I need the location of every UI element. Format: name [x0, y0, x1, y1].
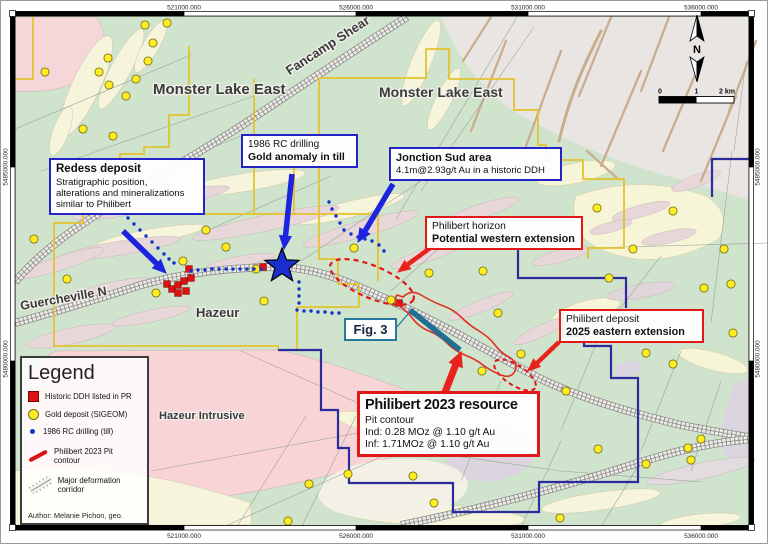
- rc-till-dot-marker: [330, 207, 333, 210]
- coord-top-4: 536000.000: [684, 5, 718, 12]
- coord-top-2: 526000.000: [339, 5, 373, 12]
- gold-deposit-marker: [562, 387, 570, 395]
- rc-till-dot-marker: [167, 257, 170, 260]
- gold-deposit-marker: [669, 360, 677, 368]
- callout-1986-rc-drilling: 1986 RC drilling Gold anomaly in till: [241, 134, 358, 168]
- label-hazeur: Hazeur: [196, 305, 239, 320]
- historic-ddh-marker: [188, 275, 195, 282]
- gold-deposit-marker: [700, 284, 708, 292]
- gold-deposit-marker: [95, 68, 103, 76]
- callout-philibert-2023-resource: Philibert 2023 resource Pit contour Ind:…: [357, 391, 540, 457]
- rc-till-dot-marker: [342, 228, 345, 231]
- gold-deposit-marker: [669, 207, 677, 215]
- gold-deposit-marker: [605, 274, 613, 282]
- gold-deposit-marker: [222, 243, 230, 251]
- callout-title: Philibert 2023 resource: [365, 397, 532, 414]
- callout-redess-deposit: Redess deposit Stratigraphic position, a…: [49, 158, 205, 215]
- coord-left-upper: 5485000.000: [3, 148, 10, 186]
- rc-till-dot-marker: [150, 240, 153, 243]
- historic-ddh-marker: [181, 278, 188, 285]
- coord-top-3: 531000.000: [511, 5, 545, 12]
- callout-title: Redess deposit: [56, 163, 198, 176]
- legend-item-label: 1986 RC drilling (till): [43, 427, 113, 436]
- rc-till-dot-marker: [210, 267, 213, 270]
- rc-till-dot-marker: [377, 243, 380, 246]
- gold-deposit-marker: [202, 226, 210, 234]
- coord-bottom-2: 526000.000: [339, 533, 373, 540]
- rc-till-dot-marker: [337, 311, 340, 314]
- rc-till-dot-marker: [297, 280, 300, 283]
- gold-deposit-marker: [79, 125, 87, 133]
- rc-till-dot-marker: [132, 222, 135, 225]
- historic-ddh-marker: [175, 290, 182, 297]
- callout-line: 2025 eastern extension: [566, 326, 697, 339]
- blue-dot-symbol: [30, 429, 35, 434]
- legend-title: Legend: [28, 362, 141, 385]
- rc-till-dot-marker: [316, 310, 319, 313]
- rc-till-dot-marker: [370, 239, 373, 242]
- rc-till-dot-marker: [259, 267, 262, 270]
- callout-philibert-horizon: Philibert horizon Potential western exte…: [425, 216, 583, 250]
- gold-deposit-marker: [430, 499, 438, 507]
- rc-till-dot-marker: [196, 268, 199, 271]
- gold-deposit-marker: [720, 245, 728, 253]
- gold-deposit-marker: [122, 92, 130, 100]
- legend-author: Author: Melanie Pichon, geo.: [28, 511, 123, 520]
- rc-till-dot-marker: [172, 261, 175, 264]
- callout-line: Jonction Sud area: [396, 152, 555, 165]
- gold-deposit-marker: [163, 19, 171, 27]
- rc-till-dot-marker: [382, 249, 385, 252]
- legend-item-label: Historic DDH listed in PR: [45, 392, 132, 401]
- gold-deposit-marker: [697, 435, 705, 443]
- rc-till-dot-marker: [156, 246, 159, 249]
- rc-till-dot-marker: [162, 252, 165, 255]
- red-square-symbol: [28, 391, 39, 402]
- scale-one: 1: [695, 89, 699, 96]
- coord-bottom-4: 536000.000: [684, 533, 718, 540]
- legend-item-rc-drilling: 1986 RC drilling (till): [28, 427, 141, 436]
- callout-line: Pit contour: [365, 415, 532, 427]
- rc-till-dot-marker: [297, 301, 300, 304]
- gold-deposit-marker: [132, 75, 140, 83]
- gold-deposit-marker: [594, 445, 602, 453]
- rc-till-dot-marker: [309, 309, 312, 312]
- gold-deposit-marker: [141, 21, 149, 29]
- gold-deposit-marker: [684, 444, 692, 452]
- gold-deposit-marker: [517, 350, 525, 358]
- red-line-symbol: [28, 450, 47, 462]
- label-monster-lake-east-west: Monster Lake East: [153, 81, 286, 98]
- label-monster-lake-east-east: Monster Lake East: [379, 84, 503, 100]
- label-hazeur-intrusive: Hazeur Intrusive: [159, 410, 245, 422]
- callout-line: Philibert horizon: [432, 221, 576, 233]
- rc-till-dot-marker: [297, 287, 300, 290]
- gold-deposit-marker: [284, 517, 292, 525]
- rc-till-dot-marker: [297, 294, 300, 297]
- callout-philibert-deposit: Philibert deposit 2025 eastern extension: [559, 309, 704, 343]
- gold-deposit-marker: [494, 309, 502, 317]
- callout-line: Stratigraphic position,: [56, 177, 198, 188]
- fig3-label: Fig. 3: [354, 322, 388, 337]
- gold-deposit-marker: [344, 470, 352, 478]
- coord-bottom-1: 521000.000: [167, 533, 201, 540]
- map-figure: Monster Lake East Monster Lake East Fanc…: [0, 0, 768, 544]
- coord-right-upper: 5485000.000: [755, 148, 762, 186]
- gold-deposit-marker: [260, 297, 268, 305]
- rc-till-dot-marker: [231, 267, 234, 270]
- gold-deposit-marker: [149, 39, 157, 47]
- rc-till-dot-marker: [126, 216, 129, 219]
- gold-deposit-marker: [478, 367, 486, 375]
- rc-till-dot-marker: [330, 311, 333, 314]
- rc-till-dot-marker: [302, 309, 305, 312]
- coord-top-1: 521000.000: [167, 5, 201, 12]
- gold-circle-symbol: [28, 409, 39, 420]
- callout-line: alterations and mineralizations: [56, 188, 198, 199]
- rc-till-dot-marker: [238, 267, 241, 270]
- gold-deposit-marker: [479, 267, 487, 275]
- legend-item-pit-contour: Philibert 2023 Pit contour: [28, 447, 141, 465]
- gold-deposit-marker: [687, 456, 695, 464]
- coord-bottom-3: 531000.000: [511, 533, 545, 540]
- gold-deposit-marker: [642, 349, 650, 357]
- historic-ddh-marker: [183, 288, 190, 295]
- callout-line: 4.1m@2.93g/t Au in a historic DDH: [396, 165, 555, 176]
- rc-till-dot-marker: [144, 234, 147, 237]
- callout-line: Inf: 1.71MOz @ 1.10 g/t Au: [365, 439, 532, 451]
- gold-deposit-marker: [104, 54, 112, 62]
- gold-deposit-marker: [425, 269, 433, 277]
- rc-till-dot-marker: [295, 308, 298, 311]
- callout-line: similar to Philibert: [56, 199, 198, 210]
- legend-panel: Legend Historic DDH listed in PR Gold de…: [20, 356, 149, 525]
- rc-till-dot-marker: [224, 267, 227, 270]
- scale-two-km: 2 km: [719, 89, 735, 96]
- callout-fig3: Fig. 3: [344, 318, 397, 341]
- gold-deposit-marker: [179, 257, 187, 265]
- gold-deposit-marker: [144, 57, 152, 65]
- gold-deposit-marker: [63, 275, 71, 283]
- callout-line: Gold anomaly in till: [248, 151, 351, 163]
- gold-deposit-marker: [105, 81, 113, 89]
- gold-deposit-marker: [305, 480, 313, 488]
- corridor-symbol: [28, 476, 52, 494]
- gold-deposit-marker: [41, 68, 49, 76]
- scale-zero: 0: [658, 89, 662, 96]
- gold-deposit-marker: [409, 472, 417, 480]
- gold-deposit-marker: [642, 460, 650, 468]
- rc-till-dot-marker: [138, 228, 141, 231]
- gold-deposit-marker: [350, 244, 358, 252]
- rc-till-dot-marker: [245, 267, 248, 270]
- gold-deposit-marker: [727, 280, 735, 288]
- rc-till-dot-marker: [203, 268, 206, 271]
- coord-left-lower: 5480000.000: [3, 340, 10, 378]
- rc-till-dot-marker: [252, 267, 255, 270]
- rc-till-dot-marker: [327, 200, 330, 203]
- gold-deposit-marker: [152, 289, 160, 297]
- legend-item-label: Philibert 2023 Pit contour: [54, 447, 141, 465]
- legend-item-gold-deposit: Gold deposit (SIGEOM): [28, 409, 141, 420]
- north-label: N: [693, 44, 701, 56]
- callout-line: Philibert deposit: [566, 314, 697, 326]
- legend-item-historic-ddh: Historic DDH listed in PR: [28, 391, 141, 402]
- rc-till-dot-marker: [323, 310, 326, 313]
- legend-item-deformation-corridor: Major deformation corridor: [28, 476, 141, 494]
- gold-deposit-marker: [109, 132, 117, 140]
- gold-deposit-marker: [729, 329, 737, 337]
- callout-line: Ind: 0.28 MOz @ 1.10 g/t Au: [365, 427, 532, 439]
- gold-deposit-marker: [593, 204, 601, 212]
- coord-right-lower: 5480000.000: [755, 340, 762, 378]
- callout-line: Potential western extension: [432, 233, 576, 246]
- legend-item-label: Gold deposit (SIGEOM): [45, 410, 127, 419]
- rc-till-dot-marker: [189, 269, 192, 272]
- callout-jonction-sud: Jonction Sud area 4.1m@2.93g/t Au in a h…: [389, 147, 562, 181]
- gold-deposit-marker: [556, 514, 564, 522]
- rc-till-dot-marker: [334, 214, 337, 217]
- rc-till-dot-marker: [349, 232, 352, 235]
- callout-line: 1986 RC drilling: [248, 139, 351, 151]
- rc-till-dot-marker: [338, 221, 341, 224]
- legend-item-label: Major deformation corridor: [58, 476, 141, 494]
- gold-deposit-marker: [629, 245, 637, 253]
- rc-till-dot-marker: [217, 267, 220, 270]
- gold-deposit-marker: [30, 235, 38, 243]
